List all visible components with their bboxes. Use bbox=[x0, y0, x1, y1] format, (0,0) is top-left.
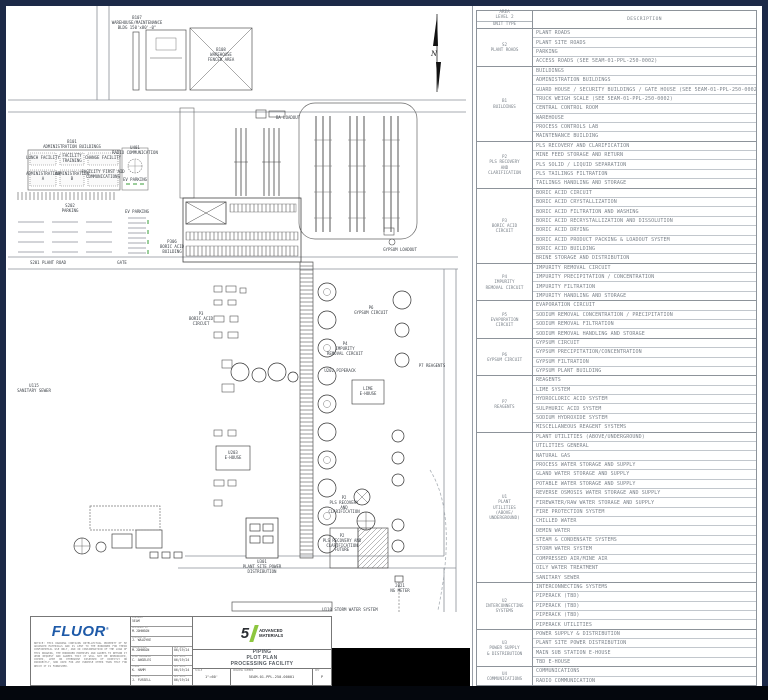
table-row: PLANT UTILITIES (ABOVE/UNDERGROUND) bbox=[533, 433, 756, 442]
table-row: OILY WATER TREATMENT bbox=[533, 564, 756, 573]
table-group-p2: P2 PLS RECOVERY AND CLARIFICATIONPLS REC… bbox=[477, 142, 756, 189]
group-label: P5 EVAPORATION CIRCUIT bbox=[477, 301, 533, 338]
table-row: UTILITIES GENERAL bbox=[533, 442, 756, 451]
table-group-p4: P4 IMPURITY REMOVAL CIRCUITIMPURITY REMO… bbox=[477, 264, 756, 302]
group-label: P3 BORIC ACID CIRCUIT bbox=[477, 189, 533, 263]
table-row: WAREHOUSE bbox=[533, 114, 756, 123]
group-rows: COMMUNICATIONSRADIO COMMUNICATION bbox=[533, 667, 756, 685]
drawing-number-cell: DRAWING NUMBER 5EAM-01-PPL-250-00001 bbox=[231, 669, 313, 685]
table-row: GLAND WATER STORAGE AND SUPPLY bbox=[533, 470, 756, 479]
table-row: POTABLE WATER STORAGE AND SUPPLY bbox=[533, 480, 756, 489]
table-group-b1: B1 BUILDINGSBUILDINGSADMINISTRATION BUIL… bbox=[477, 67, 756, 142]
table-row: GYPSUM PRECIPITATION/CONCENTRATION bbox=[533, 348, 756, 357]
table-row: GYPSUM FILTRATION bbox=[533, 358, 756, 367]
brand-slash-icon bbox=[249, 625, 259, 642]
table-row: REAGENTS bbox=[533, 376, 756, 385]
table-row: PIPERACK UTILITIES bbox=[533, 620, 756, 628]
table-row: NATURAL GAS bbox=[533, 451, 756, 460]
group-label: S2 PLANT ROADS bbox=[477, 29, 533, 66]
group-label: U1 PLANT UTILITIES (ABOVE/ UNDERGROUND) bbox=[477, 433, 533, 582]
notice-text: NOTICE: THIS DRAWING CONTAINS INTELLECTU… bbox=[31, 640, 130, 670]
table-row: DEMIN WATER bbox=[533, 526, 756, 535]
tank-columns bbox=[231, 283, 411, 553]
table-row: BORIC ACID DRYING bbox=[533, 226, 756, 235]
table-group-p5: P5 EVAPORATION CIRCUITEVAPORATION CIRCUI… bbox=[477, 301, 756, 339]
table-row: IMPURITY FILTRATION bbox=[533, 282, 756, 291]
title-column: 5 ADVANCED MATERIALS PIPING PLOT PLAN PR… bbox=[193, 617, 331, 685]
table-row: PIPERACK (TBD) bbox=[533, 602, 756, 611]
table-row: PLANT ROADS bbox=[533, 29, 756, 38]
notice-column: FLUOR® NOTICE: THIS DRAWING CONTAINS INT… bbox=[31, 617, 131, 685]
table-row: SODIUM REMOVAL HANDLING AND STORAGE bbox=[533, 329, 756, 337]
table-row: PLANT SITE ROADS bbox=[533, 38, 756, 47]
svg-text:N: N bbox=[430, 50, 438, 58]
scale-cell: SCALE 1"=60' bbox=[193, 669, 231, 685]
table-row: BRINE STORAGE AND DISTRIBUTION bbox=[533, 254, 756, 262]
table-group-p3: P3 BORIC ACID CIRCUITBORIC ACID CIRCUITB… bbox=[477, 189, 756, 264]
bottom-border-band bbox=[0, 686, 768, 700]
table-row: SULPHURIC ACID SYSTEM bbox=[533, 404, 756, 413]
table-row: PIPERACK (TBD) bbox=[533, 592, 756, 601]
table-row: CHILLED WATER bbox=[533, 517, 756, 526]
group-label: B1 BUILDINGS bbox=[477, 67, 533, 141]
table-row: PLS TAILINGS FILTRATION bbox=[533, 170, 756, 179]
drawing-title: PIPING PLOT PLAN PROCESSING FACILITY bbox=[193, 650, 331, 669]
group-label: U4 COMMUNICATIONS bbox=[477, 667, 533, 685]
group-rows: PLS RECOVERY AND CLARIFICATIONMINE FEED … bbox=[533, 142, 756, 188]
table-group-p6: P6 GYPSUM CIRCUITGYPSUM CIRCUITGYPSUM PR… bbox=[477, 339, 756, 377]
table-row: PARKING bbox=[533, 48, 756, 57]
contract-row: CLIENTJ. FUSSELLAPP DATE06/19/24 bbox=[131, 676, 192, 685]
future-area-hatch bbox=[330, 528, 388, 568]
boric-acid-building bbox=[183, 198, 301, 262]
table-group-u2: U2 INTERCONNECTING SYSTEMSINTERCONNECTIN… bbox=[477, 583, 756, 630]
table-row: SODIUM REMOVAL CONCENTRATION / PRECIPITA… bbox=[533, 311, 756, 320]
table-row: BORIC ACID CRYSTALLIZATION bbox=[533, 198, 756, 207]
table-row: TRUCK WEIGH SCALE (SEE 5EAM-01-PPL-250-0… bbox=[533, 95, 756, 104]
table-row: ADMINISTRATION BUILDINGS bbox=[533, 76, 756, 85]
table-row: ACCESS ROADS (SEE 5EAM-01-PPL-250-0002) bbox=[533, 57, 756, 65]
table-group-u4: U4 COMMUNICATIONSCOMMUNICATIONSRADIO COM… bbox=[477, 667, 756, 685]
table-row: BORIC ACID CIRCUIT bbox=[533, 189, 756, 198]
group-label: P6 GYPSUM CIRCUIT bbox=[477, 339, 533, 376]
table-row: CENTRAL CONTROL ROOM bbox=[533, 104, 756, 113]
group-rows: BUILDINGSADMINISTRATION BUILDINGSGUARD H… bbox=[533, 67, 756, 141]
sheet-divider-line bbox=[472, 6, 473, 686]
brand-name: ADVANCED MATERIALS bbox=[259, 628, 283, 639]
table-row: TAILINGS HANDLING AND STORAGE bbox=[533, 179, 756, 187]
header-description: DESCRIPTION bbox=[533, 11, 756, 28]
pond-racks bbox=[299, 103, 417, 239]
table-row: MINE FEED STORAGE AND RETURN bbox=[533, 151, 756, 160]
table-row: BORIC ACID FILTRATION AND WASHING bbox=[533, 207, 756, 216]
group-rows: IMPURITY REMOVAL CIRCUITIMPURITY PRECIPI… bbox=[533, 264, 756, 301]
group-label: P4 IMPURITY REMOVAL CIRCUIT bbox=[477, 264, 533, 301]
contract-row: FLUORK. HAMMAPP DATE06/19/24 bbox=[131, 666, 192, 676]
contract-row: LEAD ENGINEERC. ANGELESAPP DATE06/19/24 bbox=[131, 656, 192, 666]
brand-five: 5 bbox=[241, 625, 249, 642]
table-row: SODIUM HYDROXIDE SYSTEM bbox=[533, 414, 756, 423]
table-group-p7: P7 REAGENTSREAGENTSLIME SYSTEMHYDROCLORI… bbox=[477, 376, 756, 432]
table-row: MAIN SUB STATION E-HOUSE bbox=[533, 648, 756, 657]
table-row: STEAM & CONDENSATE SYSTEMS bbox=[533, 536, 756, 545]
drawing-sheet-canvas: N bbox=[0, 0, 768, 700]
contract-column: CONTRACT5EAMDESIGNED BYM.JOHNSONCHECKED … bbox=[131, 617, 193, 685]
table-row: SODIUM REMOVAL FILTRATION bbox=[533, 320, 756, 329]
table-row: IMPURITY PRECIPITATION / CONCENTRATION bbox=[533, 273, 756, 282]
rev-cell: REV P bbox=[313, 669, 331, 685]
table-row: COMMUNICATIONS bbox=[533, 667, 756, 676]
brand-logo-row: 5 ADVANCED MATERIALS bbox=[193, 617, 331, 650]
warehouse-buildings bbox=[133, 28, 252, 90]
table-row: REVERSE OSMOSIS WATER STORAGE AND SUPPLY bbox=[533, 489, 756, 498]
group-label: P2 PLS RECOVERY AND CLARIFICATION bbox=[477, 142, 533, 188]
table-row: GUARD HOUSE / SECURITY BUILDINGS / GATE … bbox=[533, 85, 756, 94]
table-row: COMPRESSED AIR/MINE AIR bbox=[533, 555, 756, 564]
table-group-s2: S2 PLANT ROADSPLANT ROADSPLANT SITE ROAD… bbox=[477, 29, 756, 67]
redaction-box bbox=[332, 648, 470, 688]
group-rows: EVAPORATION CIRCUITSODIUM REMOVAL CONCEN… bbox=[533, 301, 756, 338]
group-rows: INTERCONNECTING SYSTEMSPIPERACK (TBD)PIP… bbox=[533, 583, 756, 629]
group-rows: GYPSUM CIRCUITGYPSUM PRECIPITATION/CONCE… bbox=[533, 339, 756, 376]
group-rows: PLANT UTILITIES (ABOVE/UNDERGROUND)UTILI… bbox=[533, 433, 756, 582]
table-row: FIRE PROTECTION SYSTEM bbox=[533, 508, 756, 517]
group-rows: BORIC ACID CIRCUITBORIC ACID CRYSTALLIZA… bbox=[533, 189, 756, 263]
group-label: P7 REAGENTS bbox=[477, 376, 533, 431]
central-piperack bbox=[300, 262, 313, 558]
bottom-equipment bbox=[74, 506, 403, 612]
parking-area bbox=[16, 184, 148, 254]
header-unit-type: UNIT TYPE bbox=[477, 22, 532, 28]
table-row: BORIC ACID BUILDING bbox=[533, 245, 756, 254]
table-row: PLS SOLID / LIQUID SEPARATION bbox=[533, 160, 756, 169]
contract-row: SUPERVISORM.JOHNSONAPP DATE06/19/24 bbox=[131, 647, 192, 657]
group-rows: REAGENTSLIME SYSTEMHYDROCLORIC ACID SYST… bbox=[533, 376, 756, 431]
header-area-level: AREA LEVEL 2 bbox=[477, 11, 532, 22]
table-row: PROCESS CONTROLS LAB bbox=[533, 123, 756, 132]
table-row: BORIC ACID RECRYSTALLIZATION AND DISSOLU… bbox=[533, 217, 756, 226]
scale-row: SCALE 1"=60' DRAWING NUMBER 5EAM-01-PPL-… bbox=[193, 669, 331, 685]
table-row: GYPSUM CIRCUIT bbox=[533, 339, 756, 348]
group-rows: POWER SUPPLY & DISTRIBUTIONPLANT SITE PO… bbox=[533, 630, 756, 667]
table-groups: S2 PLANT ROADSPLANT ROADSPLANT SITE ROAD… bbox=[477, 29, 756, 685]
table-header: AREA LEVEL 2 UNIT TYPE DESCRIPTION bbox=[477, 11, 756, 29]
roads bbox=[8, 6, 466, 612]
table-row: PIPERACK (TBD) bbox=[533, 611, 756, 620]
table-row: LIME SYSTEM bbox=[533, 386, 756, 395]
table-row: MISCELLANEOUS REAGENT SYSTEMS bbox=[533, 423, 756, 431]
table-row: BORIC ACID PRODUCT PACKING & LOADOUT SYS… bbox=[533, 236, 756, 245]
contract-row: CHECKED BYJ. WALDYKE bbox=[131, 637, 192, 647]
table-row: PROCESS WATER STORAGE AND SUPPLY bbox=[533, 461, 756, 470]
title-block: FLUOR® NOTICE: THIS DRAWING CONTAINS INT… bbox=[30, 616, 332, 686]
table-row: IMPURITY REMOVAL CIRCUIT bbox=[533, 264, 756, 273]
table-row: EVAPORATION CIRCUIT bbox=[533, 301, 756, 310]
table-row: STORM WATER SYSTEM bbox=[533, 545, 756, 554]
table-group-u3: U3 POWER SUPPLY & DISTRIBUTIONPOWER SUPP… bbox=[477, 630, 756, 668]
plot-plan-drawing: N bbox=[0, 0, 470, 620]
table-row: TBD E-HOUSE bbox=[533, 658, 756, 666]
table-row: SANITARY SEWER bbox=[533, 573, 756, 581]
table-row: BUILDINGS bbox=[533, 67, 756, 76]
table-row: PLS RECOVERY AND CLARIFICATION bbox=[533, 142, 756, 151]
table-row: GYPSUM PLANT BUILDING bbox=[533, 367, 756, 375]
contract-row: DESIGNED BYM.JOHNSON bbox=[131, 627, 192, 637]
group-rows: PLANT ROADSPLANT SITE ROADSPARKINGACCESS… bbox=[533, 29, 756, 66]
table-row: PLANT SITE POWER DISTRIBUTION bbox=[533, 639, 756, 648]
table-row: RADIO COMMUNICATION bbox=[533, 677, 756, 685]
contract-row: CONTRACT5EAM bbox=[131, 617, 192, 627]
table-row: MAINTENANCE BUILDING bbox=[533, 132, 756, 140]
group-label: U2 INTERCONNECTING SYSTEMS bbox=[477, 583, 533, 629]
area-table: AREA LEVEL 2 UNIT TYPE DESCRIPTION S2 PL… bbox=[476, 10, 757, 686]
table-row: INTERCONNECTING SYSTEMS bbox=[533, 583, 756, 592]
table-row: POWER SUPPLY & DISTRIBUTION bbox=[533, 630, 756, 639]
table-row: FIREWATER/RAW WATER STORAGE AND SUPPLY bbox=[533, 498, 756, 507]
table-row: HYDROCLORIC ACID SYSTEM bbox=[533, 395, 756, 404]
group-label: U3 POWER SUPPLY & DISTRIBUTION bbox=[477, 630, 533, 667]
north-arrow-icon: N bbox=[430, 14, 441, 92]
table-row: IMPURITY HANDLING AND STORAGE bbox=[533, 292, 756, 300]
fluor-logo: FLUOR® bbox=[31, 617, 130, 640]
piperacks-top bbox=[180, 108, 285, 198]
table-group-u1: U1 PLANT UTILITIES (ABOVE/ UNDERGROUND)P… bbox=[477, 433, 756, 583]
